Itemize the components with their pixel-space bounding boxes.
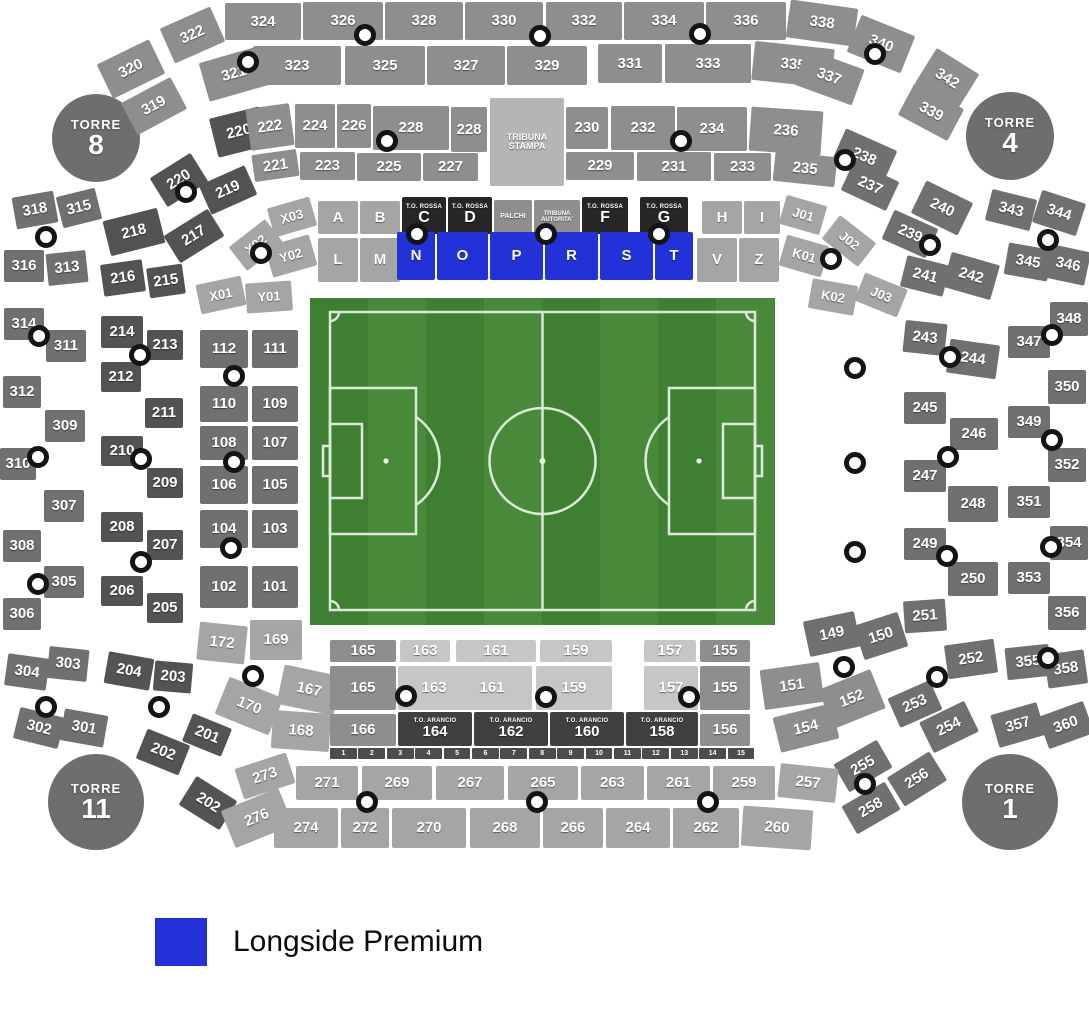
section-209[interactable]: 209 — [147, 468, 183, 498]
section-272[interactable]: 272 — [341, 808, 389, 848]
section-154[interactable]: 154 — [773, 703, 840, 752]
entrance-dot — [919, 234, 941, 256]
section-313[interactable]: 313 — [45, 250, 88, 286]
row-number-12: 12 — [642, 748, 669, 759]
section-331[interactable]: 331 — [598, 44, 662, 83]
entrance-dot — [648, 223, 670, 245]
entrance-dot — [844, 452, 866, 474]
entrance-dot — [148, 696, 170, 718]
section-336[interactable]: 336 — [706, 2, 786, 40]
entrance-dot — [937, 446, 959, 468]
section-k02[interactable]: K02 — [808, 278, 859, 316]
section-159[interactable]: 159 — [540, 640, 612, 662]
section-262[interactable]: 262 — [673, 808, 739, 848]
section-168[interactable]: 168 — [271, 710, 332, 752]
tower-1: TORRE 1 — [962, 754, 1058, 850]
section-218[interactable]: 218 — [102, 208, 165, 256]
section-163[interactable]: 163 — [400, 640, 450, 662]
section-201[interactable]: 201 — [182, 713, 232, 757]
section-353[interactable]: 353 — [1008, 562, 1050, 594]
section-a[interactable]: A — [318, 201, 358, 234]
tower-11: TORRE 11 — [48, 754, 144, 850]
tower-number: 4 — [1002, 130, 1018, 157]
section-110[interactable]: 110 — [200, 386, 248, 422]
section-164[interactable]: T.O. ARANCIO164 — [398, 712, 472, 746]
section-155[interactable]: 155 — [700, 640, 750, 662]
section-350[interactable]: 350 — [1048, 370, 1086, 404]
entrance-dot — [242, 665, 264, 687]
section-169[interactable]: 169 — [250, 620, 302, 660]
section-m[interactable]: M — [360, 238, 400, 282]
section-221[interactable]: 221 — [251, 149, 299, 182]
entrance-dot — [678, 686, 700, 708]
entrance-dot — [526, 791, 548, 813]
section-322[interactable]: 322 — [160, 6, 226, 63]
row-number-5: 5 — [444, 748, 471, 759]
row-number-7: 7 — [500, 748, 527, 759]
entrance-dot — [395, 685, 417, 707]
entrance-dot — [535, 223, 557, 245]
section-p[interactable]: P — [490, 232, 543, 280]
entrance-dot — [1041, 429, 1063, 451]
section-323[interactable]: 323 — [253, 46, 341, 85]
section-251[interactable]: 251 — [903, 599, 947, 634]
entrance-dot — [376, 130, 398, 152]
section-315[interactable]: 315 — [56, 188, 103, 229]
section-tribuna-stampa[interactable]: TRIBUNA STAMPA — [490, 98, 564, 186]
entrance-dot — [130, 551, 152, 573]
section-233[interactable]: 233 — [714, 153, 771, 181]
section-260[interactable]: 260 — [741, 806, 814, 851]
section-307[interactable]: 307 — [44, 490, 84, 522]
row-number-14: 14 — [699, 748, 726, 759]
section-102[interactable]: 102 — [200, 566, 248, 608]
legend-swatch-longside-premium — [155, 918, 207, 966]
section-227[interactable]: 227 — [423, 153, 478, 181]
section-161[interactable]: 161 — [452, 666, 532, 710]
section-230[interactable]: 230 — [566, 107, 608, 149]
section-202[interactable]: 202 — [136, 729, 191, 776]
section-166[interactable]: 166 — [330, 714, 396, 746]
section-256[interactable]: 256 — [887, 751, 947, 806]
row-number-13: 13 — [671, 748, 698, 759]
entrance-dot — [939, 346, 961, 368]
entrance-dot — [129, 344, 151, 366]
entrance-dot — [854, 773, 876, 795]
section-309[interactable]: 309 — [45, 410, 85, 442]
row-number-1: 1 — [330, 748, 357, 759]
entrance-dot — [535, 686, 557, 708]
entrance-dot — [844, 541, 866, 563]
section-250[interactable]: 250 — [948, 562, 998, 596]
section-318[interactable]: 318 — [12, 191, 59, 230]
entrance-dot — [834, 149, 856, 171]
section-308[interactable]: 308 — [3, 530, 41, 562]
row-number-9: 9 — [557, 748, 584, 759]
entrance-dot — [1041, 324, 1063, 346]
section-x01[interactable]: X01 — [195, 276, 246, 315]
legend: Longside Premium — [155, 918, 483, 966]
entrance-dot — [130, 448, 152, 470]
section-231[interactable]: 231 — [637, 152, 711, 181]
section-264[interactable]: 264 — [606, 808, 670, 848]
section-j01[interactable]: J01 — [779, 195, 828, 235]
section-246[interactable]: 246 — [950, 418, 998, 450]
section-150[interactable]: 150 — [854, 612, 909, 660]
entrance-dot — [1037, 647, 1059, 669]
section-257[interactable]: 257 — [777, 763, 838, 803]
section-111[interactable]: 111 — [252, 330, 298, 368]
entrance-dot — [864, 43, 886, 65]
entrance-dot — [223, 365, 245, 387]
section-v[interactable]: V — [697, 238, 737, 282]
entrance-dot — [175, 181, 197, 203]
section-162[interactable]: T.O. ARANCIO162 — [474, 712, 548, 746]
entrance-dot — [926, 666, 948, 688]
section-303[interactable]: 303 — [46, 646, 89, 682]
entrance-dot — [529, 25, 551, 47]
row-number-10: 10 — [586, 748, 613, 759]
stadium-seating-map: TORRE 8 TORRE 4 TORRE 11 TORRE 1 — [0, 0, 1089, 1032]
legend-label: Longside Premium — [233, 925, 483, 959]
section-329[interactable]: 329 — [507, 46, 587, 85]
section-o[interactable]: O — [437, 232, 488, 280]
entrance-dot — [820, 248, 842, 270]
section-156[interactable]: 156 — [700, 714, 750, 746]
entrance-dot — [220, 537, 242, 559]
section-165[interactable]: 165 — [330, 640, 396, 662]
section-207[interactable]: 207 — [147, 530, 183, 560]
entrance-dot — [356, 791, 378, 813]
section-205[interactable]: 205 — [147, 593, 183, 623]
section-109[interactable]: 109 — [252, 386, 298, 422]
section-160[interactable]: T.O. ARANCIO160 — [550, 712, 624, 746]
section-225[interactable]: 225 — [357, 153, 421, 181]
section-235[interactable]: 235 — [773, 151, 838, 187]
section-338[interactable]: 338 — [786, 0, 859, 47]
row-number-3: 3 — [387, 748, 414, 759]
section-f[interactable]: T.O. ROSSAF — [582, 197, 628, 234]
section-211[interactable]: 211 — [145, 398, 183, 428]
section-333[interactable]: 333 — [665, 44, 751, 83]
section-357[interactable]: 357 — [990, 702, 1046, 748]
section-252[interactable]: 252 — [944, 639, 998, 680]
section-151[interactable]: 151 — [760, 662, 825, 710]
row-number-6: 6 — [472, 748, 499, 759]
section-206[interactable]: 206 — [101, 576, 143, 606]
section-212[interactable]: 212 — [101, 362, 141, 392]
section-312[interactable]: 312 — [3, 376, 41, 408]
section-224[interactable]: 224 — [295, 104, 335, 148]
section-z[interactable]: Z — [739, 238, 779, 282]
row-number-2: 2 — [358, 748, 385, 759]
section-149[interactable]: 149 — [803, 611, 861, 657]
entrance-dot — [1037, 229, 1059, 251]
section-112[interactable]: 112 — [200, 330, 248, 368]
entrance-dot — [35, 696, 57, 718]
entrance-dot — [936, 545, 958, 567]
section-242[interactable]: 242 — [942, 252, 1000, 300]
section-268[interactable]: 268 — [470, 808, 540, 848]
section-346[interactable]: 346 — [1045, 244, 1089, 286]
section-216[interactable]: 216 — [100, 259, 146, 297]
section-306[interactable]: 306 — [3, 598, 41, 630]
section-217[interactable]: 217 — [163, 209, 224, 264]
section-208[interactable]: 208 — [101, 512, 143, 542]
section-228[interactable]: 228 — [451, 107, 487, 152]
tower-4: TORRE 4 — [966, 92, 1054, 180]
section-101[interactable]: 101 — [252, 566, 298, 608]
tower-number: 1 — [1002, 796, 1018, 823]
section-263[interactable]: 263 — [581, 766, 644, 800]
section-155[interactable]: 155 — [700, 666, 750, 710]
section-223[interactable]: 223 — [300, 152, 355, 180]
entrance-dot — [697, 791, 719, 813]
section-327[interactable]: 327 — [427, 46, 505, 85]
entrance-dot — [27, 573, 49, 595]
section-305[interactable]: 305 — [44, 566, 84, 598]
section-222[interactable]: 222 — [245, 103, 294, 151]
section-s[interactable]: S — [600, 232, 653, 280]
section-304[interactable]: 304 — [4, 653, 50, 691]
section-107[interactable]: 107 — [252, 426, 298, 460]
section-232[interactable]: 232 — [611, 106, 675, 150]
section-351[interactable]: 351 — [1008, 486, 1050, 518]
entrance-dot — [689, 23, 711, 45]
section-344[interactable]: 344 — [1032, 190, 1086, 237]
section-105[interactable]: 105 — [252, 466, 298, 504]
section-j03[interactable]: J03 — [854, 272, 908, 317]
entrance-dot — [28, 325, 50, 347]
section-356[interactable]: 356 — [1048, 596, 1086, 630]
section-y01[interactable]: Y01 — [245, 280, 293, 313]
section-236[interactable]: 236 — [749, 107, 824, 156]
entrance-dot — [250, 242, 272, 264]
section-172[interactable]: 172 — [196, 622, 248, 665]
section-316[interactable]: 316 — [4, 250, 44, 282]
section-270[interactable]: 270 — [392, 808, 466, 848]
section-259[interactable]: 259 — [713, 766, 775, 800]
entrance-dot — [237, 51, 259, 73]
entrance-dot — [223, 451, 245, 473]
section-palchi[interactable]: PALCHI — [494, 200, 532, 234]
section-161[interactable]: 161 — [456, 640, 536, 662]
entrance-dot — [844, 357, 866, 379]
section-267[interactable]: 267 — [436, 766, 504, 800]
section-l[interactable]: L — [318, 238, 358, 282]
section-d[interactable]: T.O. ROSSAD — [448, 197, 492, 234]
entrance-dot — [1040, 536, 1062, 558]
section-337[interactable]: 337 — [793, 49, 864, 106]
tower-number: 8 — [88, 132, 104, 159]
section-325[interactable]: 325 — [345, 46, 425, 85]
section-103[interactable]: 103 — [252, 510, 298, 548]
tower-number: 11 — [81, 796, 111, 823]
football-pitch — [310, 298, 775, 625]
section-274[interactable]: 274 — [274, 808, 338, 848]
row-number-8: 8 — [529, 748, 556, 759]
section-i[interactable]: I — [744, 201, 780, 234]
section-106[interactable]: 106 — [200, 466, 248, 504]
row-number-15: 15 — [728, 748, 755, 759]
section-332[interactable]: 332 — [546, 2, 622, 40]
section-226[interactable]: 226 — [337, 104, 371, 148]
entrance-dot — [27, 446, 49, 468]
row-number-4: 4 — [415, 748, 442, 759]
section-h[interactable]: H — [702, 201, 742, 234]
section-324[interactable]: 324 — [225, 3, 301, 40]
section-203[interactable]: 203 — [153, 660, 193, 693]
section-271[interactable]: 271 — [296, 766, 358, 800]
pitch-markings — [310, 298, 775, 625]
section-158[interactable]: T.O. ARANCIO158 — [626, 712, 698, 746]
entrance-dot — [406, 223, 428, 245]
section-215[interactable]: 215 — [146, 264, 186, 299]
section-360[interactable]: 360 — [1038, 701, 1089, 749]
section-214[interactable]: 214 — [101, 316, 143, 348]
section-213[interactable]: 213 — [147, 330, 183, 360]
section-328[interactable]: 328 — [385, 2, 463, 40]
entrance-dot — [35, 226, 57, 248]
section-165[interactable]: 165 — [330, 666, 396, 710]
entrance-dot — [354, 24, 376, 46]
section-343[interactable]: 343 — [985, 189, 1037, 231]
section-204[interactable]: 204 — [104, 651, 155, 691]
section-b[interactable]: B — [360, 201, 400, 234]
section-229[interactable]: 229 — [566, 152, 634, 180]
section-157[interactable]: 157 — [644, 640, 696, 662]
section-219[interactable]: 219 — [199, 165, 258, 215]
row-number-11: 11 — [614, 748, 641, 759]
section-311[interactable]: 311 — [46, 330, 86, 362]
section-266[interactable]: 266 — [543, 808, 603, 848]
section-245[interactable]: 245 — [904, 392, 946, 424]
section-248[interactable]: 248 — [948, 486, 998, 522]
section-352[interactable]: 352 — [1048, 448, 1086, 482]
section-301[interactable]: 301 — [60, 708, 109, 747]
entrance-dot — [833, 656, 855, 678]
entrance-dot — [670, 130, 692, 152]
